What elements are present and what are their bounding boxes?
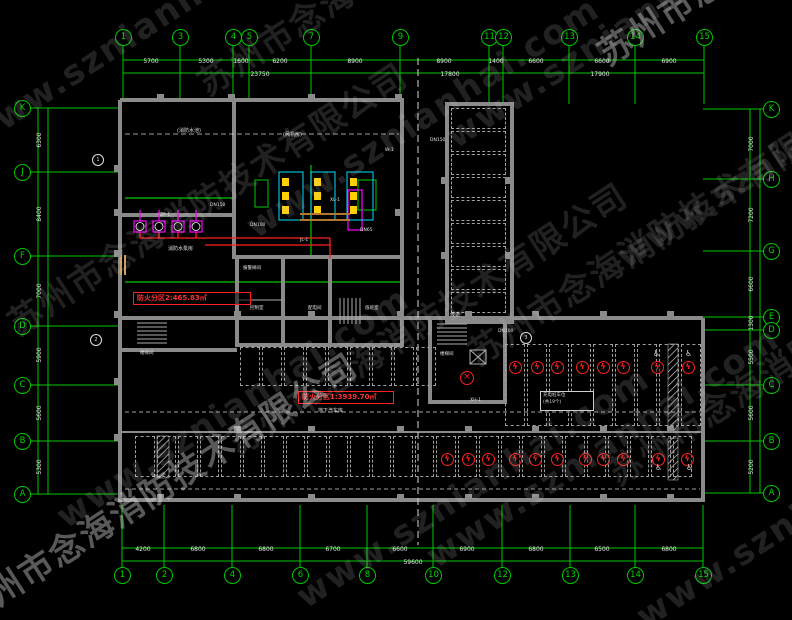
ev-charging-symbol: ϟ	[597, 453, 610, 466]
axis-bubble-bottom: 10	[425, 567, 442, 584]
structural-column	[157, 494, 164, 501]
floor-plan-linework	[0, 0, 792, 620]
parking-stall	[200, 436, 220, 477]
dimension-text: 6800	[190, 547, 205, 553]
axis-bubble-left: A	[14, 486, 31, 503]
axis-bubble-bottom: 8	[359, 567, 376, 584]
axis-bubble-left: F	[14, 248, 31, 265]
dimension-text: 1300	[749, 315, 755, 330]
structural-column	[505, 252, 512, 259]
annotation-label: 楼梯间	[140, 352, 154, 357]
ev-charging-symbol: ϟ	[509, 361, 522, 374]
axis-bubble-left: K	[14, 100, 31, 117]
annotation-label: (消防水池)	[177, 129, 201, 134]
parking-stall	[505, 344, 525, 426]
annotation-label: DN150	[210, 204, 225, 209]
annotation-label: DN150	[430, 139, 445, 144]
dimension-text: 5300	[198, 59, 213, 65]
parking-stall	[630, 436, 650, 477]
ev-charging-symbol: ϟ	[462, 453, 475, 466]
axis-bubble-right: A	[763, 485, 780, 502]
structural-column	[114, 378, 121, 385]
parking-stall	[549, 344, 569, 426]
structural-column	[465, 311, 472, 318]
dimension-text: 8400	[37, 206, 43, 221]
fire-compartment-2-label: 防火分区2:465.83㎡	[133, 292, 251, 305]
structural-column	[234, 494, 241, 501]
structural-column	[667, 426, 674, 433]
ev-charging-symbol: ϟ	[617, 453, 630, 466]
annotation-label: 坡道	[450, 313, 460, 318]
ev-charging-symbol: ϟ	[531, 361, 544, 374]
annotation-label: W-1	[385, 149, 394, 154]
structural-column	[228, 94, 235, 101]
parking-stall	[328, 347, 348, 386]
axis-bubble-right: K	[763, 101, 780, 118]
dimension-text: 6600	[528, 59, 543, 65]
ahu-units	[279, 172, 373, 220]
parking-stall	[527, 344, 547, 426]
axis-bubble-top: 7	[303, 29, 320, 46]
structural-column	[234, 311, 241, 318]
dimension-text: 17900	[590, 72, 609, 78]
parking-stall	[240, 347, 260, 386]
axis-bubble-left: D	[14, 318, 31, 335]
parking-stall	[350, 347, 370, 386]
parking-stall	[451, 292, 506, 313]
ev-charging-symbol: ϟ	[682, 361, 695, 374]
fire-pumps	[134, 190, 362, 232]
parking-stall	[306, 347, 326, 386]
fire-compartment-1-label: 防火分区1:3939.70㎡	[298, 391, 394, 404]
cad-floor-plan: www.sznianhai.com苏州市念海消防技术有限公司www.sznian…	[0, 0, 792, 620]
axis-bubble-top: 1	[115, 29, 132, 46]
annotation-label: DN100	[250, 224, 265, 229]
annotation-label: DN100	[498, 330, 513, 335]
structural-column	[308, 94, 315, 101]
detail-callout: 3	[520, 332, 532, 344]
axis-bubble-top: 12	[495, 29, 512, 46]
dimension-text: 7000	[749, 136, 755, 151]
structural-column	[465, 426, 472, 433]
structural-column	[667, 311, 674, 318]
axis-bubble-top: 5	[241, 29, 258, 46]
structural-column	[397, 494, 404, 501]
parking-stall	[451, 131, 506, 152]
annotation-label: 地下汽车库	[318, 409, 343, 414]
parking-stall	[329, 436, 349, 477]
structural-column	[505, 177, 512, 184]
structural-column	[532, 311, 539, 318]
parking-stall	[451, 269, 506, 290]
dimension-text: 6900	[459, 547, 474, 553]
axis-bubble-left: C	[14, 377, 31, 394]
accessible-parking-icon: ♿	[685, 350, 692, 358]
axis-bubble-bottom: 4	[224, 567, 241, 584]
axis-bubble-bottom: 15	[695, 567, 712, 584]
parking-stall	[135, 436, 155, 477]
parking-stall	[593, 344, 613, 426]
structural-column	[441, 177, 448, 184]
axis-bubble-left: B	[14, 433, 31, 450]
dimension-text: 6500	[594, 547, 609, 553]
dimension-text: 6900	[661, 59, 676, 65]
dimension-text: 5600	[37, 405, 43, 420]
annotation-label: JL-1	[300, 239, 308, 244]
dimension-text: 23750	[250, 72, 269, 78]
parking-stall	[178, 436, 198, 477]
ev-charging-symbol: ϟ	[651, 361, 664, 374]
dimension-text: 59600	[403, 560, 422, 566]
dimension-text: 8900	[436, 59, 451, 65]
parking-stall	[451, 154, 506, 175]
equipment-cells	[282, 178, 357, 214]
axis-bubble-top: 9	[392, 29, 409, 46]
annotation-label: 配电间	[308, 307, 322, 312]
ev-charging-symbol: ϟ	[441, 453, 454, 466]
dimension-text: 6600	[594, 59, 609, 65]
dimension-text: 6600	[749, 276, 755, 291]
axis-bubble-right: B	[763, 433, 780, 450]
accessible-parking-icon: ♿	[686, 464, 693, 472]
ev-charging-symbol: ϟ	[482, 453, 495, 466]
structural-column	[441, 252, 448, 259]
structural-column	[114, 165, 121, 172]
annotation-label: DN65	[360, 229, 373, 234]
axis-bubble-right: G	[763, 243, 780, 260]
parking-stall	[615, 344, 635, 426]
dimension-text: 17800	[440, 72, 459, 78]
ev-legend-line2: (共19个)	[543, 400, 591, 407]
ev-charging-symbol: ϟ	[509, 453, 522, 466]
structural-column	[395, 94, 402, 101]
parking-stall	[393, 436, 413, 477]
axis-bubble-top: 14	[627, 29, 644, 46]
structural-column	[600, 311, 607, 318]
dimension-text: 1600	[233, 59, 248, 65]
structural-column	[667, 494, 674, 501]
annotation-label: 消防水泵房	[168, 247, 193, 252]
structural-column	[600, 426, 607, 433]
parking-stall	[221, 436, 241, 477]
dimension-text: 5900	[37, 347, 43, 362]
dimension-text: 1400	[488, 59, 503, 65]
ev-legend-box: 充电桩车位 (共19个)	[540, 391, 594, 411]
structural-column	[157, 94, 164, 101]
accessible-parking-icon: ♿	[653, 350, 660, 358]
ev-charging-symbol: ϟ	[551, 453, 564, 466]
structural-column	[308, 494, 315, 501]
parking-stall	[372, 347, 392, 386]
axis-bubble-bottom: 12	[494, 567, 511, 584]
parking-stall	[416, 347, 436, 386]
structural-column	[600, 494, 607, 501]
structural-column	[532, 494, 539, 501]
parking-stall	[451, 108, 506, 129]
structural-column	[114, 209, 121, 216]
dimension-text: 6800	[528, 547, 543, 553]
axis-bubble-bottom: 2	[156, 567, 173, 584]
parking-stall	[264, 436, 284, 477]
dimension-text: 8900	[347, 59, 362, 65]
ev-charging-symbol: ϟ	[617, 361, 630, 374]
dimension-text: 5500	[749, 349, 755, 364]
parking-stall	[243, 436, 263, 477]
dimension-text: 7000	[37, 283, 43, 298]
parking-stall	[451, 177, 506, 198]
parking-stall	[451, 246, 506, 267]
axis-bubble-bottom: 6	[292, 567, 309, 584]
parking-stall	[372, 436, 392, 477]
dimension-text: 6700	[325, 547, 340, 553]
axis-bubble-bottom: 13	[562, 567, 579, 584]
detail-callout: 2	[90, 334, 102, 346]
dimension-text: 4200	[135, 547, 150, 553]
parking-stall	[262, 347, 282, 386]
dimension-text: 6200	[272, 59, 287, 65]
structural-column	[114, 311, 121, 318]
annotation-label: 报警阀间	[243, 267, 261, 272]
structural-column	[397, 426, 404, 433]
dimension-text: 6800	[661, 547, 676, 553]
parking-stall	[659, 344, 679, 426]
structural-column	[308, 311, 315, 318]
structural-column	[397, 311, 404, 318]
parking-stall	[157, 436, 177, 477]
ev-charging-symbol: ϟ	[529, 453, 542, 466]
structural-column	[114, 250, 121, 257]
annotation-label: (风机房)	[283, 133, 302, 138]
parking-stall	[284, 347, 304, 386]
structural-column	[234, 426, 241, 433]
structural-column	[395, 209, 402, 216]
axis-bubble-top: 4	[225, 29, 242, 46]
annotation-label: 楼梯间	[440, 353, 454, 358]
accessible-parking-icon: ♿	[655, 464, 662, 472]
parking-stall	[350, 436, 370, 477]
ev-legend-line1: 充电桩车位	[543, 393, 591, 400]
annotation-label: ZP-1	[160, 214, 170, 219]
structural-column	[532, 426, 539, 433]
structural-column	[308, 426, 315, 433]
dimension-text: 5200	[749, 459, 755, 474]
structural-column	[465, 494, 472, 501]
dimension-text: 5600	[749, 405, 755, 420]
parking-stall	[394, 347, 414, 386]
axis-bubble-bottom: 14	[627, 567, 644, 584]
axis-bubble-right: D	[763, 322, 780, 339]
parking-stall	[451, 223, 506, 244]
structural-column	[114, 434, 121, 441]
annotation-label: XL-1	[330, 199, 340, 204]
detail-callout: 1	[92, 154, 104, 166]
axis-bubble-top: 13	[561, 29, 578, 46]
annotation-label: XH-1	[470, 399, 481, 404]
ev-charging-symbol: ϟ	[597, 361, 610, 374]
dimension-text: 6300	[37, 132, 43, 147]
dimension-text: 6600	[392, 547, 407, 553]
parking-stall	[571, 344, 591, 426]
axis-bubble-top: 15	[696, 29, 713, 46]
dimension-text: 5300	[37, 459, 43, 474]
parking-stall	[286, 436, 306, 477]
axis-bubble-left: J	[14, 164, 31, 181]
parking-stall	[451, 200, 506, 221]
axis-bubble-right: H	[763, 171, 780, 188]
fire-hydrant-symbol: ×	[460, 371, 474, 385]
annotation-label: 控制室	[250, 307, 264, 312]
axis-bubble-bottom: 1	[114, 567, 131, 584]
ev-charging-symbol: ϟ	[579, 453, 592, 466]
dimension-text: 7200	[749, 207, 755, 222]
axis-bubble-right: C	[763, 377, 780, 394]
axis-bubble-top: 3	[172, 29, 189, 46]
parking-stall	[307, 436, 327, 477]
ev-charging-symbol: ϟ	[551, 361, 564, 374]
dimension-text: 5700	[143, 59, 158, 65]
ev-charging-symbol: ϟ	[576, 361, 589, 374]
dimension-text: 6800	[258, 547, 273, 553]
parking-stall	[415, 436, 435, 477]
annotation-label: 值班室	[365, 307, 379, 312]
